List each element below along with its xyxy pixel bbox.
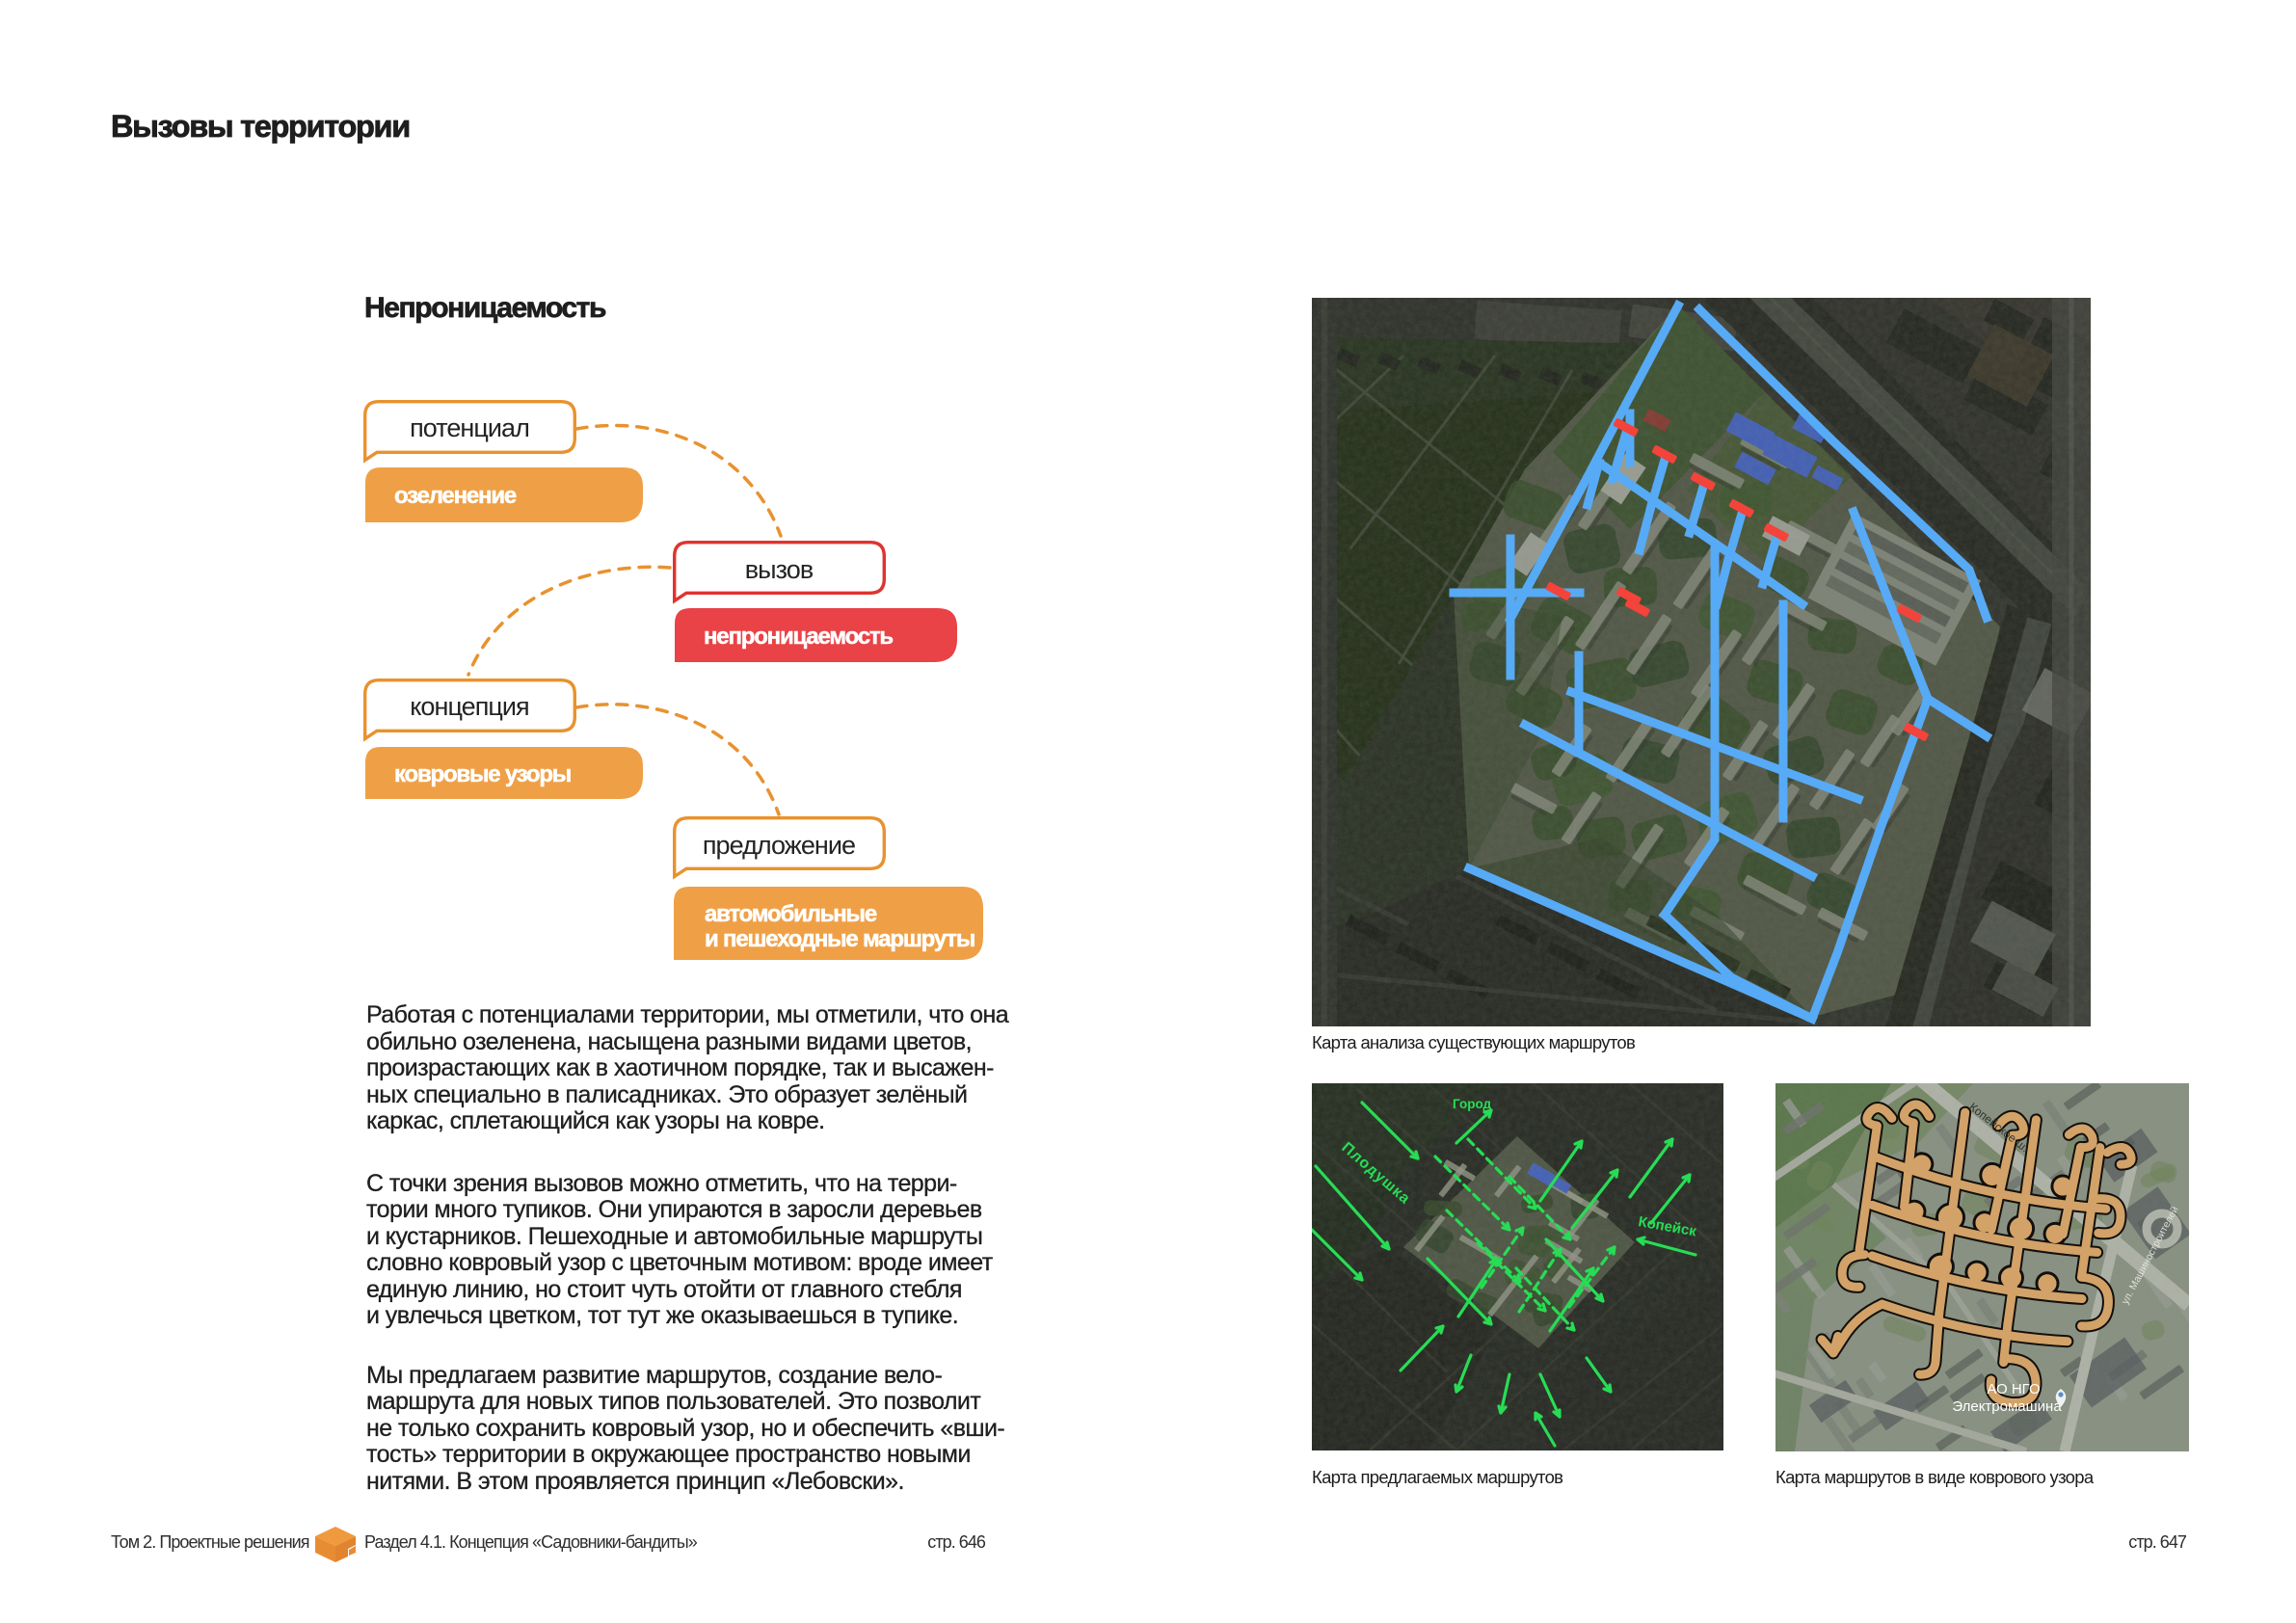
svg-text:концепция: концепция — [410, 692, 528, 721]
svg-text:автомобильные: автомобильные — [705, 901, 877, 927]
svg-text:предложение: предложение — [703, 831, 855, 860]
svg-text:непроницаемость: непроницаемость — [704, 624, 893, 650]
svg-text:Город: Город — [1453, 1097, 1492, 1111]
svg-text:Электромашина: Электромашина — [1952, 1398, 2062, 1415]
svg-text:и пешеходные маршруты: и пешеходные маршруты — [705, 926, 974, 952]
svg-text:ковровые узоры: ковровые узоры — [394, 761, 571, 787]
svg-text:вызов: вызов — [745, 555, 814, 584]
svg-text:АО НГО: АО НГО — [1987, 1381, 2040, 1397]
svg-text:потенциал: потенциал — [410, 413, 529, 442]
svg-text:озеленение: озеленение — [394, 483, 517, 509]
